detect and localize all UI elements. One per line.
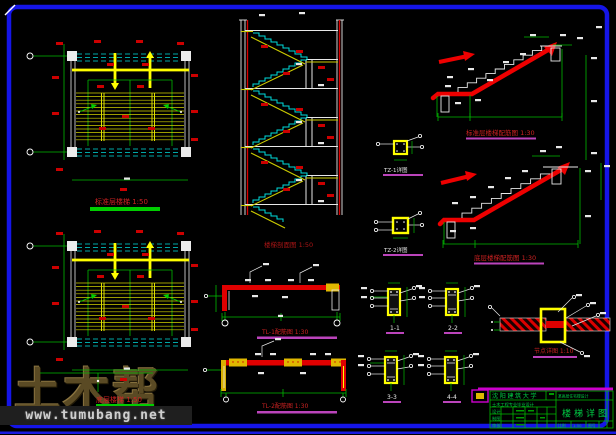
titleblock-project: 某高层住宅楼设计 xyxy=(558,394,589,399)
title-block: 沈阳建筑大学 某高层住宅楼设计 土木工程专业毕业设计 设计 制图 审核 楼梯详图… xyxy=(472,388,613,429)
tz1-label: TZ-1详图 xyxy=(383,166,408,174)
flight-bottom-label: 底层楼梯配筋图 1:30 xyxy=(474,253,536,262)
tz1-detail: TZ-1详图 xyxy=(376,134,423,176)
beam2-detail: TL-2配筋图 1:30 xyxy=(203,338,346,414)
titleblock-scale-value: 1:50 xyxy=(573,423,582,428)
titleblock-university: 沈阳建筑大学 xyxy=(492,392,538,400)
sec4-label: 4-4 xyxy=(447,394,457,401)
beam2-label: TL-2配筋图 1:30 xyxy=(261,402,308,410)
tz2-label: TZ-2详图 xyxy=(383,246,408,254)
sec3-label: 3-3 xyxy=(387,394,397,401)
plan-top-label: 标准层楼梯 1:50 xyxy=(95,197,148,206)
titleblock-sheet-label: 图号 xyxy=(588,423,596,428)
plan-bottom-view: 底层楼梯 1:50 xyxy=(27,230,198,408)
titleblock-row-check: 审核 xyxy=(492,422,501,429)
splice-label: 节点详图 1:10 xyxy=(534,347,574,355)
splice-detail: 节点详图 1:10 xyxy=(488,294,610,358)
titleblock-scale-label: 比例 xyxy=(558,423,566,428)
flight-detail-bottom: 底层楼梯配筋图 1:30 xyxy=(440,146,610,265)
flight-detail-top: 标准层楼梯配筋图 1:30 xyxy=(433,26,602,160)
tz2-detail: TZ-2详图 xyxy=(374,211,423,256)
cad-canvas: 土木帮 xyxy=(0,0,616,435)
sec1-label: 1-1 xyxy=(390,325,400,332)
beam-sections: 1-1 2-2 3-3 4-4 xyxy=(358,283,480,403)
beam1-detail: TL-1配筋图 1:30 xyxy=(204,263,340,339)
titleblock-drawing-title: 楼梯详图 xyxy=(562,408,610,420)
titleblock-row-draft: 制图 xyxy=(492,415,500,422)
drawing-sheet: 标准层楼梯 1:50 底层楼梯 1:50 xyxy=(0,0,616,435)
section-view: 楼梯剖面图 1:50 xyxy=(239,12,344,249)
plan-top-view: 标准层楼梯 1:50 xyxy=(27,40,198,211)
section-label: 楼梯剖面图 1:50 xyxy=(264,240,313,249)
titleblock-subtitle: 土木工程专业毕业设计 xyxy=(492,401,534,408)
sec2-label: 2-2 xyxy=(448,325,458,332)
plan-bottom-label: 底层楼梯 1:50 xyxy=(96,395,142,404)
watermark-url: www.tumubang.net xyxy=(0,406,192,425)
beam1-label: TL-1配筋图 1:30 xyxy=(261,328,308,336)
titleblock-row-design: 设计 xyxy=(492,408,500,415)
flight-top-label: 标准层楼梯配筋图 1:30 xyxy=(466,128,535,137)
